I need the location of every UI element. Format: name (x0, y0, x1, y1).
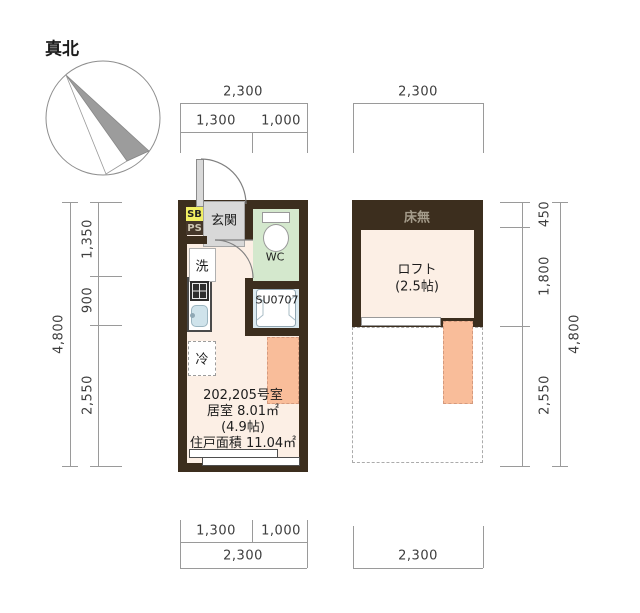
dim-tick (483, 103, 484, 153)
dim-tick (180, 103, 181, 153)
unit-bath-label: SU0707 (255, 294, 298, 307)
dim-unit-left-seg1: 1,350 (81, 219, 96, 259)
dim-tick (90, 325, 122, 326)
dim-tick (500, 466, 530, 467)
dim-unit-bottom-right: 1,000 (261, 524, 301, 539)
toilet-bowl-icon (263, 224, 289, 252)
dim-loft-right-seg2: 1,800 (538, 256, 553, 296)
dim-tick (353, 103, 354, 153)
faucet-icon (190, 313, 195, 318)
ps-shaft: PS (186, 221, 203, 235)
true-north-label: 真北 (45, 35, 79, 60)
no-floor-label: 床無 (404, 207, 430, 226)
living-area: 居室 8.01㎡ (179, 404, 307, 420)
dim-line (70, 202, 71, 466)
dim-tick (62, 466, 78, 467)
dim-unit-bottom-left: 1,300 (196, 524, 236, 539)
dim-tick (90, 466, 122, 467)
dim-loft-right-seg1: 450 (538, 201, 553, 227)
dim-tick (90, 276, 122, 277)
dim-tick (500, 202, 530, 203)
wc-wall (245, 201, 253, 240)
dim-tick (252, 520, 253, 542)
dim-tick (552, 466, 568, 467)
loft-size-label: (2.5帖) (395, 276, 439, 295)
wc-wall (245, 281, 308, 289)
dim-tick (552, 202, 568, 203)
compass-rose-icon (43, 58, 165, 180)
entrance-label: 玄関 (211, 210, 237, 229)
fridge-label: 冷 (195, 349, 208, 368)
dim-unit-top-right: 1,000 (261, 114, 301, 129)
dim-loft-right-seg3: 2,550 (538, 375, 553, 415)
dim-line (180, 542, 307, 543)
dim-tick (180, 520, 181, 568)
tatami-size: (4.9帖) (179, 420, 307, 436)
toilet-tank-icon (262, 212, 290, 223)
wc-label: WC (266, 251, 285, 264)
loft-railing (361, 317, 441, 326)
unit-info-block: 202,205号室 居室 8.01㎡ (4.9帖) 住戸面積 11.04㎡ (179, 388, 307, 452)
dim-line (522, 202, 523, 466)
sb-shaft: SB (186, 207, 203, 221)
bath-wall (245, 328, 308, 336)
dim-tick (307, 520, 308, 568)
dim-tick (307, 103, 308, 153)
dim-unit-top-total: 2,300 (223, 85, 263, 100)
dim-tick (62, 202, 78, 203)
dim-unit-bottom-total: 2,300 (223, 549, 263, 564)
dim-loft-right-total: 4,800 (568, 314, 583, 354)
dim-tick (500, 227, 530, 228)
dim-line (98, 202, 99, 466)
dim-line (560, 202, 561, 466)
dim-line (353, 568, 483, 569)
dim-line (180, 103, 307, 104)
dim-tick (353, 526, 354, 568)
loft-ladder-loft (443, 321, 473, 404)
total-area: 住戸面積 11.04㎡ (179, 436, 307, 452)
dim-tick (90, 202, 122, 203)
dim-loft-bottom-total: 2,300 (398, 549, 438, 564)
wall-stub (187, 236, 207, 244)
floorplan-canvas: 真北 2,300 1,300 1,000 2,300 4,800 1,350 9… (0, 0, 640, 613)
window-sash (202, 457, 300, 466)
room-number: 202,205号室 (179, 388, 307, 404)
dim-tick (500, 326, 530, 327)
dim-tick (252, 132, 253, 153)
dim-line (180, 568, 307, 569)
dim-tick (483, 526, 484, 568)
dim-line (353, 103, 483, 104)
dim-line (180, 132, 307, 133)
dim-unit-top-left: 1,300 (196, 114, 236, 129)
dim-loft-top-total: 2,300 (398, 85, 438, 100)
washer-label: 洗 (195, 256, 208, 275)
dim-unit-left-seg2: 900 (81, 287, 96, 313)
dim-unit-left-seg3: 2,550 (81, 375, 96, 415)
dim-unit-left-total: 4,800 (52, 314, 67, 354)
entrance-door-leaf (196, 159, 204, 207)
